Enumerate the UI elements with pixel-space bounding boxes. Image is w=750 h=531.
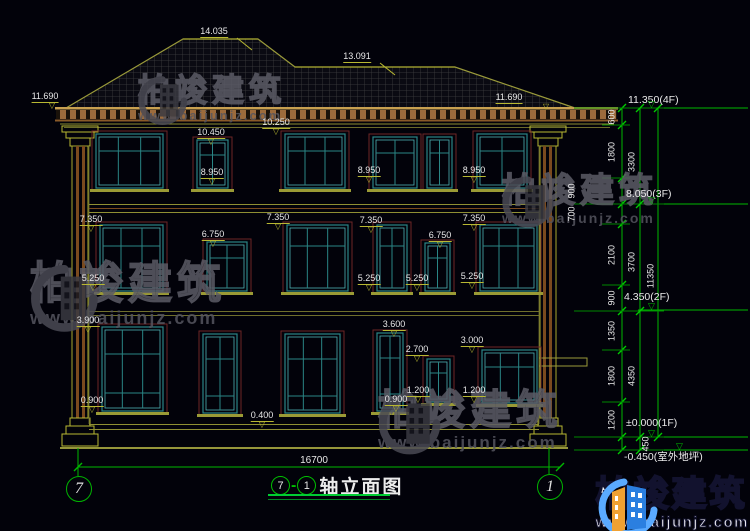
- elevation-label: 13.091: [343, 52, 371, 63]
- cad-elevation-drawing: 柏竣建筑 www.baijunjz.com 柏竣建筑 www.baijunjz.…: [0, 0, 750, 531]
- window: [96, 324, 169, 415]
- title-bubble-7: 7: [271, 476, 290, 495]
- window-sill: [279, 414, 346, 417]
- floor-elevation-value: 4.350(2F): [624, 291, 670, 303]
- elevation-value: 11.690: [32, 91, 59, 101]
- elevation-value: 8.950: [463, 165, 486, 175]
- dimension-text: 900: [568, 183, 577, 198]
- window-sill: [281, 292, 354, 295]
- elevation-label: 5.250▽: [461, 272, 484, 283]
- floor-elevation-marker: -0.450(室外地坪): [624, 452, 703, 462]
- window: [474, 222, 543, 295]
- window-sill: [471, 189, 533, 192]
- side-ledge: [539, 358, 587, 366]
- dimension-text: 1200: [608, 410, 617, 430]
- window-sill: [191, 189, 234, 192]
- window-casing: [281, 331, 344, 416]
- elevation-label: 5.250▽: [82, 274, 105, 285]
- window: [90, 131, 169, 192]
- elevation-value: 5.250: [82, 273, 105, 283]
- window: [94, 222, 169, 295]
- window: [197, 331, 243, 417]
- eave-cornice: [55, 107, 618, 128]
- elevation-label: 6.750▽: [429, 231, 452, 242]
- elevation-label: 7.350▽: [80, 215, 103, 226]
- elevation-value: 6.750: [429, 230, 452, 240]
- window: [201, 239, 253, 295]
- window-sill: [476, 404, 543, 407]
- elevation-label: 11.690▽: [496, 93, 523, 104]
- window-sill: [474, 292, 543, 295]
- elevation-value: 1.200: [407, 385, 430, 395]
- elevation-value: 3.000: [461, 335, 484, 345]
- axis-number: 1: [546, 478, 554, 496]
- window: [281, 222, 354, 295]
- dimension-text: 2100: [608, 245, 617, 265]
- elevation-label: 0.400▽: [251, 411, 274, 422]
- elevation-value: 8.950: [201, 167, 224, 177]
- brand-logo: 柏竣建筑 www.baijunjz.com: [592, 476, 749, 531]
- floor-elevation-marker: ±0.000(1F): [626, 418, 677, 428]
- window-sill: [421, 403, 456, 406]
- window-casing: [283, 222, 352, 294]
- window-sill: [367, 189, 423, 192]
- window: [279, 331, 346, 417]
- window: [279, 131, 351, 192]
- elevation-label: 3.000▽: [461, 336, 484, 347]
- window-sill: [371, 412, 409, 415]
- window: [421, 356, 456, 406]
- elevation-label: 7.350▽: [267, 213, 290, 224]
- dimension-text: 600: [608, 109, 617, 124]
- elevation-value: 14.035: [200, 26, 228, 36]
- elevation-value: 2.700: [406, 344, 429, 354]
- elevation-label: 3.600▽: [383, 320, 406, 331]
- elevation-label: 7.350▽: [360, 216, 383, 227]
- elevation-value: 7.350: [267, 212, 290, 222]
- window-casing: [281, 131, 349, 191]
- elevation-value: 6.750: [202, 229, 225, 239]
- dimension-text: 1800: [608, 142, 617, 162]
- dimension-text: 11350: [647, 264, 656, 288]
- dimension-text: 1800: [608, 366, 617, 386]
- elevation-label: 6.750▽: [202, 230, 225, 241]
- elevation-value: 11.690: [496, 92, 523, 102]
- pilaster-right: [530, 126, 566, 446]
- window-sill: [90, 189, 169, 192]
- window: [367, 134, 423, 192]
- axis-number: 7: [75, 480, 83, 498]
- window: [421, 134, 458, 192]
- axis-bubble-7: 7: [66, 476, 92, 502]
- elevation-label: 8.950▽: [358, 166, 381, 177]
- elevation-value: 7.350: [360, 215, 383, 225]
- elevation-triangle: ▽: [648, 99, 655, 109]
- dimension-text: 450: [642, 436, 651, 451]
- elevation-label: 11.690▽: [32, 92, 59, 103]
- dimension-text: 900: [608, 290, 617, 305]
- window-casing: [98, 324, 167, 414]
- window-sill: [94, 292, 169, 295]
- window-casing: [478, 347, 541, 406]
- dimension-text: 700: [568, 206, 577, 221]
- elevation-label: 5.250▽: [358, 274, 381, 285]
- elevation-label: 8.950▽: [463, 166, 486, 177]
- elevation-label: 1.200▽: [407, 386, 430, 397]
- elevation-value: 0.900: [81, 395, 104, 405]
- elevation-triangle: ▽: [648, 195, 655, 205]
- elevation-value: 8.950: [358, 165, 381, 175]
- window: [471, 131, 533, 192]
- elevation-value: 3.600: [383, 319, 406, 329]
- elevation-label: 3.900▽: [77, 316, 100, 327]
- elevation-value: 1.200: [463, 385, 486, 395]
- elevation-value: 13.091: [343, 51, 371, 61]
- floor-elevation-marker: 4.350(2F): [624, 292, 670, 302]
- total-width-dimension: 16700: [300, 455, 328, 466]
- window: [476, 347, 543, 407]
- elevation-label: 5.250▽: [406, 274, 429, 285]
- axis-bubble-1: 1: [537, 474, 563, 500]
- elevation-value: 5.250: [406, 273, 429, 283]
- floor-elevation-value: -0.450(室外地坪): [624, 451, 703, 463]
- elevation-value: 5.250: [358, 273, 381, 283]
- window-casing: [96, 222, 167, 294]
- title-bubble-1: 1: [297, 476, 316, 495]
- elevation-label: 0.900▽: [81, 396, 104, 407]
- elevation-label: 7.350▽: [463, 214, 486, 225]
- dimension-text: 3300: [628, 152, 637, 172]
- window-sill: [96, 412, 169, 415]
- elevation-value: 0.400: [251, 410, 274, 420]
- elevation-value: 7.350: [463, 213, 486, 223]
- window-sill: [421, 189, 458, 192]
- window-sill: [371, 292, 413, 295]
- elevation-label: 14.035: [200, 27, 228, 38]
- window-sill: [279, 189, 351, 192]
- elevation-triangle: ▽: [648, 301, 655, 311]
- elevation-triangle: ▽: [676, 441, 683, 451]
- elevation-value: 7.350: [80, 214, 103, 224]
- elevation-label: 10.250▽: [262, 118, 290, 129]
- elevation-value: 10.250: [262, 117, 290, 127]
- window-casing: [92, 131, 167, 191]
- window-casing: [476, 222, 541, 294]
- title-underline: [268, 494, 390, 500]
- elevation-value: 5.250: [461, 271, 484, 281]
- elevation-label: 8.950▽: [201, 168, 224, 179]
- elevation-label: 2.700▽: [406, 345, 429, 356]
- window-sill: [201, 292, 253, 295]
- title-dash: -: [291, 477, 296, 495]
- dimension-text: 3700: [628, 252, 637, 272]
- elevation-value: 0.900: [385, 394, 408, 404]
- window-sill: [197, 414, 243, 417]
- elevation-label: 0.900▽: [385, 395, 408, 406]
- elevation-label: 1.200▽: [463, 386, 486, 397]
- elevation-value: 3.900: [77, 315, 100, 325]
- brand-logo-icon: [592, 476, 666, 531]
- dimension-text: 1350: [608, 321, 617, 341]
- elevation-label: 10.450▽: [197, 128, 225, 139]
- window-sill: [419, 292, 456, 295]
- dimension-text: 4350: [628, 366, 637, 386]
- elevation-value: 10.450: [197, 127, 225, 137]
